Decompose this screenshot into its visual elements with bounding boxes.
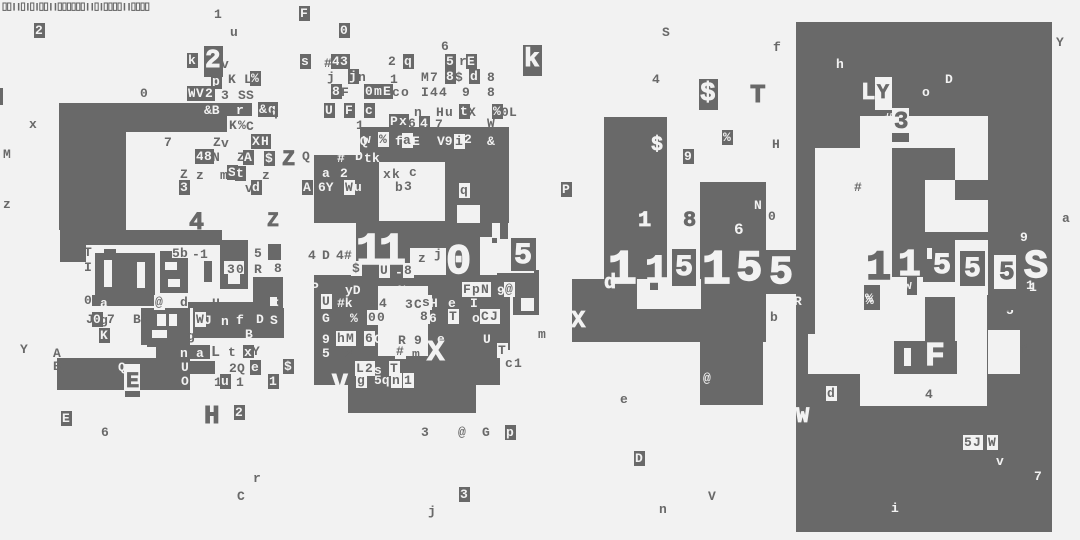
svg-text:3: 3 xyxy=(227,262,235,277)
svg-text:4: 4 xyxy=(336,248,344,263)
svg-text:K: K xyxy=(228,72,236,87)
svg-text:6: 6 xyxy=(141,312,149,327)
svg-text:p: p xyxy=(472,282,480,297)
svg-text:4: 4 xyxy=(189,208,204,237)
svg-text:9: 9 xyxy=(322,332,330,347)
svg-text:yD: yD xyxy=(345,283,361,298)
svg-text:E: E xyxy=(126,369,139,394)
svg-text:1: 1 xyxy=(236,375,244,390)
svg-text:k: k xyxy=(524,44,540,74)
svg-text:4: 4 xyxy=(308,248,316,263)
svg-text:I: I xyxy=(470,296,478,311)
svg-text:5q: 5q xyxy=(374,373,390,388)
svg-text:n: n xyxy=(358,70,366,85)
svg-text:t: t xyxy=(364,151,372,166)
svg-text:5: 5 xyxy=(322,346,330,361)
svg-text:6: 6 xyxy=(429,311,437,326)
svg-text:e: e xyxy=(251,360,259,375)
svg-text:0: 0 xyxy=(377,310,385,325)
svg-text:R: R xyxy=(254,262,262,277)
svg-text:m: m xyxy=(538,327,546,342)
svg-text:8: 8 xyxy=(683,208,696,233)
svg-text:8: 8 xyxy=(487,85,495,100)
svg-text:d: d xyxy=(604,272,616,295)
svg-text:1: 1 xyxy=(214,375,222,390)
svg-text:2: 2 xyxy=(235,405,243,420)
svg-text:#: # xyxy=(324,56,332,71)
svg-text:U: U xyxy=(483,332,491,347)
svg-text:Y: Y xyxy=(252,344,260,359)
svg-text:d: d xyxy=(180,295,188,310)
svg-text:D: D xyxy=(635,451,643,466)
svg-text:C: C xyxy=(246,119,254,134)
svg-text:s: s xyxy=(301,54,309,69)
svg-text:m: m xyxy=(412,347,420,362)
svg-text:n: n xyxy=(221,314,229,329)
svg-text:d: d xyxy=(252,180,260,195)
svg-text:@: @ xyxy=(155,295,163,310)
svg-text:T: T xyxy=(449,309,457,324)
svg-text:0: 0 xyxy=(236,262,244,277)
svg-text:x: x xyxy=(383,167,391,182)
svg-text:x: x xyxy=(399,114,407,129)
svg-text:E: E xyxy=(412,134,420,149)
svg-text:W: W xyxy=(796,404,810,429)
svg-text:0: 0 xyxy=(501,105,509,120)
svg-text:X: X xyxy=(252,134,260,149)
svg-text:V9: V9 xyxy=(437,134,453,149)
svg-text:@: @ xyxy=(458,425,466,440)
svg-text:m: m xyxy=(374,84,382,99)
svg-text:f: f xyxy=(773,40,781,55)
svg-text:T: T xyxy=(84,245,92,260)
svg-text:M: M xyxy=(421,70,429,85)
svg-text:<: < xyxy=(271,296,279,311)
svg-text:Y: Y xyxy=(1056,35,1064,50)
svg-text:4: 4 xyxy=(430,85,438,100)
svg-text:3: 3 xyxy=(421,425,429,440)
svg-text:9: 9 xyxy=(462,85,470,100)
svg-text:7: 7 xyxy=(1034,469,1042,484)
svg-text:9: 9 xyxy=(1020,230,1028,245)
svg-text:F: F xyxy=(341,85,349,100)
svg-text:e: e xyxy=(620,392,628,407)
svg-text:5: 5 xyxy=(172,246,180,261)
svg-text:x: x xyxy=(244,345,252,360)
svg-text:K: K xyxy=(100,328,108,343)
svg-text:Q: Q xyxy=(237,361,245,376)
svg-text:q: q xyxy=(404,54,412,69)
svg-text:m: m xyxy=(220,168,228,183)
svg-text:E: E xyxy=(467,54,475,69)
svg-text:6: 6 xyxy=(734,221,744,239)
svg-text:v: v xyxy=(221,57,229,72)
svg-text:4: 4 xyxy=(370,296,378,311)
svg-text:F: F xyxy=(463,282,471,297)
svg-text:#: # xyxy=(344,248,352,263)
svg-text:b: b xyxy=(770,310,778,325)
svg-text:5: 5 xyxy=(446,54,454,69)
svg-text:h: h xyxy=(337,331,345,346)
svg-text:o: o xyxy=(401,85,409,100)
svg-text:W: W xyxy=(196,312,204,327)
svg-text:%: % xyxy=(865,291,873,306)
svg-text:j: j xyxy=(349,69,357,84)
svg-text:4: 4 xyxy=(332,54,340,69)
svg-text:C: C xyxy=(481,309,489,324)
svg-text:$: $ xyxy=(352,261,360,276)
svg-text:U: U xyxy=(212,296,220,311)
svg-text:0: 0 xyxy=(84,293,92,308)
svg-text:r%: r% xyxy=(390,283,406,298)
svg-text:H: H xyxy=(772,137,780,152)
svg-text:1: 1 xyxy=(645,250,669,295)
svg-text:K: K xyxy=(229,118,237,133)
svg-text:u: u xyxy=(445,105,453,120)
svg-text:f: f xyxy=(395,134,403,149)
svg-text:%: % xyxy=(379,132,387,147)
svg-text:7: 7 xyxy=(164,135,172,150)
svg-text:h: h xyxy=(836,57,844,72)
svg-text:Q: Q xyxy=(302,149,310,164)
svg-text:r: r xyxy=(253,471,261,486)
svg-text:b: b xyxy=(180,246,188,261)
svg-text:J: J xyxy=(204,313,212,328)
svg-text:S: S xyxy=(246,88,254,103)
svg-text:M: M xyxy=(3,147,11,162)
svg-text:B: B xyxy=(53,359,61,374)
svg-text:U: U xyxy=(325,103,333,118)
svg-text:z: z xyxy=(3,197,11,212)
svg-text:0: 0 xyxy=(446,238,471,286)
svg-text:z: z xyxy=(262,168,270,183)
svg-text:S: S xyxy=(270,313,278,328)
svg-text:N: N xyxy=(212,150,220,165)
svg-text:D: D xyxy=(355,149,363,164)
svg-text:F: F xyxy=(925,338,945,375)
svg-text:V: V xyxy=(196,86,204,101)
svg-text:H: H xyxy=(430,296,438,311)
svg-text:4: 4 xyxy=(652,72,660,87)
svg-text:Z: Z xyxy=(267,210,279,233)
svg-text:6Y: 6Y xyxy=(318,180,334,195)
svg-text:0: 0 xyxy=(140,86,148,101)
svg-text:1: 1 xyxy=(1026,278,1034,293)
svg-text:Q: Q xyxy=(118,360,126,375)
svg-text:&: & xyxy=(487,134,495,149)
svg-text:W: W xyxy=(487,116,495,131)
svg-text:a: a xyxy=(100,296,108,311)
svg-text:a: a xyxy=(1062,211,1070,226)
svg-text:c: c xyxy=(392,85,400,100)
svg-text:E: E xyxy=(62,411,70,426)
svg-text:$: $ xyxy=(284,359,292,374)
svg-text:5: 5 xyxy=(736,244,762,294)
svg-text:n: n xyxy=(659,502,667,517)
svg-text:w: w xyxy=(363,132,371,147)
svg-text:&B: &B xyxy=(204,103,220,118)
svg-text:3: 3 xyxy=(221,88,229,103)
svg-text:X: X xyxy=(571,308,586,335)
svg-text:c: c xyxy=(365,103,373,118)
svg-text:s: s xyxy=(422,295,430,310)
svg-text:r: r xyxy=(236,103,244,118)
svg-text:@: @ xyxy=(505,282,513,297)
svg-text:D: D xyxy=(256,312,264,327)
svg-text:O: O xyxy=(181,374,189,389)
svg-text:S: S xyxy=(238,88,246,103)
svg-text:T: T xyxy=(750,80,766,110)
svg-text:4: 4 xyxy=(925,387,933,402)
svg-text:q: q xyxy=(460,183,468,198)
svg-text:x: x xyxy=(29,117,37,132)
svg-text:g: g xyxy=(357,373,365,388)
svg-text:#: # xyxy=(396,344,404,359)
svg-text:A: A xyxy=(244,150,252,165)
svg-text:u: u xyxy=(354,180,362,195)
svg-text:8: 8 xyxy=(404,263,412,278)
svg-text:$: $ xyxy=(265,151,273,166)
svg-text:D: D xyxy=(322,248,330,263)
svg-text:#k: #k xyxy=(337,296,353,311)
svg-text:5: 5 xyxy=(964,435,972,450)
svg-text:d: d xyxy=(470,69,478,84)
svg-text:V: V xyxy=(332,369,348,399)
svg-text:d: d xyxy=(827,386,835,401)
svg-text:B: B xyxy=(245,327,253,342)
svg-text:5: 5 xyxy=(999,257,1015,287)
svg-text:0: 0 xyxy=(768,209,776,224)
svg-text:J: J xyxy=(973,435,981,450)
svg-text:9: 9 xyxy=(414,333,422,348)
svg-text:Z: Z xyxy=(213,135,221,150)
svg-text:6: 6 xyxy=(408,116,416,131)
svg-text:U: U xyxy=(345,134,353,149)
svg-text:8: 8 xyxy=(274,261,282,276)
svg-text:P: P xyxy=(562,182,570,197)
svg-text:M: M xyxy=(346,331,354,346)
svg-text:1: 1 xyxy=(200,247,208,262)
svg-text:$: $ xyxy=(651,134,663,157)
svg-text:1: 1 xyxy=(404,373,412,388)
svg-text:j: j xyxy=(428,504,436,519)
svg-text:q: q xyxy=(270,105,278,120)
svg-text:5: 5 xyxy=(964,254,981,285)
svg-text:5: 5 xyxy=(769,251,793,296)
svg-text:7: 7 xyxy=(107,312,115,327)
svg-text:C: C xyxy=(237,489,245,504)
svg-text:4: 4 xyxy=(439,85,447,100)
svg-text:%: % xyxy=(251,71,259,86)
svg-text:0: 0 xyxy=(340,23,348,38)
svg-text:F: F xyxy=(300,6,308,21)
svg-text:c: c xyxy=(409,165,417,180)
svg-text:j: j xyxy=(327,70,335,85)
svg-text:I: I xyxy=(421,85,429,100)
svg-text:R: R xyxy=(794,294,802,309)
svg-text:3: 3 xyxy=(405,297,413,312)
svg-text:7: 7 xyxy=(430,70,438,85)
svg-text:3: 3 xyxy=(460,487,468,502)
svg-text:I: I xyxy=(84,260,92,275)
svg-text:6: 6 xyxy=(101,425,109,440)
svg-text:W: W xyxy=(345,180,353,195)
svg-text:a: a xyxy=(196,346,204,361)
svg-text:5: 5 xyxy=(933,249,951,283)
svg-text:%: % xyxy=(350,311,358,326)
svg-text:2: 2 xyxy=(205,86,213,101)
svg-text:H: H xyxy=(261,134,269,149)
svg-text:5: 5 xyxy=(254,246,262,261)
svg-text:X: X xyxy=(427,336,445,369)
svg-text:i: i xyxy=(455,134,463,149)
svg-text:L: L xyxy=(509,105,517,120)
svg-text:v: v xyxy=(996,454,1004,469)
svg-text:%: % xyxy=(723,130,731,145)
svg-text:4: 4 xyxy=(420,116,428,131)
svg-text:3: 3 xyxy=(894,109,908,136)
svg-text:H: H xyxy=(204,401,220,431)
svg-text:E: E xyxy=(383,84,391,99)
svg-text:@: @ xyxy=(703,371,711,386)
svg-text:3: 3 xyxy=(340,54,348,69)
svg-text:U: U xyxy=(181,360,189,375)
svg-text:2: 2 xyxy=(345,347,353,362)
svg-text:o: o xyxy=(472,311,480,326)
svg-text:L: L xyxy=(861,80,875,107)
svg-text:t: t xyxy=(460,104,468,119)
svg-text:1: 1 xyxy=(514,356,522,371)
svg-text:X: X xyxy=(468,105,476,120)
svg-text:8: 8 xyxy=(204,149,212,164)
svg-text:3: 3 xyxy=(180,180,188,195)
svg-text:P: P xyxy=(390,114,398,129)
svg-text:@: @ xyxy=(396,310,404,325)
svg-text:y: y xyxy=(1052,406,1060,421)
svg-text:#: # xyxy=(884,111,893,128)
svg-text:2: 2 xyxy=(388,54,396,69)
svg-text:7: 7 xyxy=(435,117,443,132)
svg-text:S: S xyxy=(228,165,236,180)
svg-text:k: k xyxy=(188,53,196,68)
svg-text:3: 3 xyxy=(404,179,412,194)
svg-text:W: W xyxy=(988,435,996,450)
svg-text:r: r xyxy=(459,54,467,69)
svg-text:%: % xyxy=(238,118,246,133)
svg-text:2: 2 xyxy=(464,132,472,147)
svg-text:-: - xyxy=(192,247,200,262)
svg-text:G: G xyxy=(482,425,490,440)
svg-text:c: c xyxy=(505,356,513,371)
svg-text:8: 8 xyxy=(332,84,340,99)
svg-text:#: # xyxy=(337,151,345,166)
svg-text:J: J xyxy=(490,309,498,324)
svg-text:2: 2 xyxy=(340,166,348,181)
svg-text:4: 4 xyxy=(196,149,204,164)
svg-text:U: U xyxy=(380,263,388,278)
svg-text:N: N xyxy=(481,282,489,297)
svg-text:$: $ xyxy=(455,70,463,85)
svg-text:n: n xyxy=(392,373,400,388)
svg-text:C: C xyxy=(374,332,382,347)
svg-text:n: n xyxy=(180,346,188,361)
svg-text:2: 2 xyxy=(35,23,43,38)
svg-text:o: o xyxy=(922,85,930,100)
svg-text:U: U xyxy=(322,294,330,309)
svg-text:u: u xyxy=(230,25,238,40)
svg-text:f: f xyxy=(236,313,244,328)
svg-text:u: u xyxy=(221,374,229,389)
svg-text:1: 1 xyxy=(866,244,891,292)
svg-text:5: 5 xyxy=(675,251,693,285)
svg-text:4: 4 xyxy=(379,296,387,311)
svg-text:1: 1 xyxy=(702,244,731,298)
svg-text:$: $ xyxy=(700,78,716,108)
svg-text:k: k xyxy=(372,151,380,166)
svg-text:8: 8 xyxy=(420,309,428,324)
svg-text:A: A xyxy=(303,180,311,195)
svg-text:1: 1 xyxy=(638,208,651,233)
svg-text:b: b xyxy=(395,180,403,195)
svg-text:2: 2 xyxy=(205,45,221,75)
svg-text:9: 9 xyxy=(684,149,692,164)
svg-text:z: z xyxy=(418,251,426,266)
svg-text:L: L xyxy=(211,344,220,361)
svg-text:v: v xyxy=(221,136,229,151)
svg-text:F: F xyxy=(345,103,353,118)
svg-text:W: W xyxy=(188,86,196,101)
svg-text:#: # xyxy=(854,180,862,195)
svg-text:a: a xyxy=(322,166,330,181)
svg-text:Y: Y xyxy=(877,82,889,105)
svg-text:P: P xyxy=(311,280,319,295)
svg-text:1: 1 xyxy=(214,7,222,22)
svg-text:-: - xyxy=(395,265,403,280)
svg-text:V: V xyxy=(708,489,716,504)
svg-text:z: z xyxy=(196,168,204,183)
svg-text:g: g xyxy=(187,329,195,344)
svg-text:Z: Z xyxy=(282,147,295,172)
svg-text:D: D xyxy=(945,72,953,87)
svg-text:S: S xyxy=(662,25,670,40)
svg-text:6: 6 xyxy=(365,331,373,346)
svg-text:8: 8 xyxy=(446,69,454,84)
svg-text:w: w xyxy=(904,278,912,293)
svg-text:1: 1 xyxy=(269,374,277,389)
svg-text:5: 5 xyxy=(514,239,532,273)
svg-text:a: a xyxy=(403,133,411,148)
svg-text:Y: Y xyxy=(20,342,28,357)
svg-text:i: i xyxy=(891,501,899,516)
svg-text:0: 0 xyxy=(368,310,376,325)
svg-text:t: t xyxy=(228,345,236,360)
svg-text:2: 2 xyxy=(229,361,237,376)
svg-text:1: 1 xyxy=(356,118,364,133)
svg-text:6: 6 xyxy=(441,39,449,54)
svg-text:j: j xyxy=(434,247,442,262)
svg-text:N: N xyxy=(754,198,762,213)
svg-text:G: G xyxy=(322,311,330,326)
svg-text:0: 0 xyxy=(365,84,373,99)
svg-text:9: 9 xyxy=(497,284,505,299)
svg-text:8: 8 xyxy=(487,70,495,85)
svg-text:t: t xyxy=(236,166,244,181)
svg-text:f: f xyxy=(1020,342,1028,357)
svg-text:&: & xyxy=(259,102,267,117)
svg-text:p: p xyxy=(506,425,514,440)
svg-text:B: B xyxy=(133,312,141,327)
